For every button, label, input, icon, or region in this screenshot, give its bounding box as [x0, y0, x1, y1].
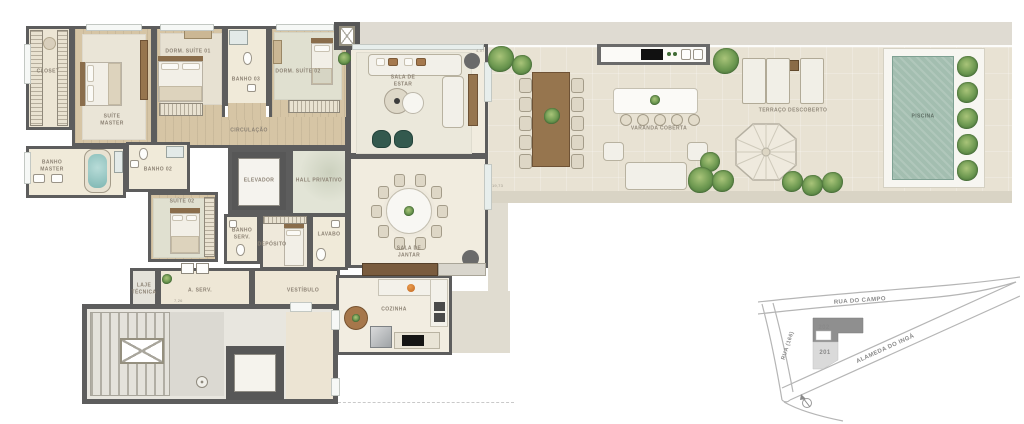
room-a-serv — [158, 268, 252, 308]
decor-dot — [667, 52, 671, 56]
dorm1-pillow — [161, 63, 179, 70]
deposito-pillow — [286, 230, 301, 236]
north-arrow-icon — [800, 394, 812, 408]
outdoor-cooktop-icon — [641, 49, 663, 60]
banho3-shower — [229, 30, 248, 45]
deposito-shelf — [263, 216, 307, 224]
service-lobby — [286, 312, 333, 399]
map-unit-202-label: 202 — [818, 325, 829, 331]
varanda-chair — [571, 97, 584, 112]
suite-master-tv-console — [140, 40, 148, 100]
varanda-chair — [519, 78, 532, 93]
dining-chair — [415, 174, 426, 187]
dorm2-pillow — [314, 45, 330, 52]
varanda-chair — [519, 154, 532, 169]
terrace-slab-band — [358, 22, 1012, 45]
floor-plan-canvas: CLOSET SUÍTE MASTER DORM. SUÍTE 01 BANHO… — [0, 0, 1024, 424]
outdoor-sink-icon — [681, 49, 691, 60]
window — [160, 24, 214, 31]
sun-lounger — [800, 58, 824, 104]
wall-oven-icon — [434, 313, 445, 322]
circulacao-branch — [228, 103, 266, 120]
dining-chair — [415, 237, 426, 250]
building-entry — [816, 331, 831, 340]
window — [86, 24, 142, 31]
banho-master-sink-icon — [51, 174, 63, 183]
dining-chair — [378, 186, 389, 199]
sofa-pillow — [376, 58, 385, 66]
stair-void-x — [120, 338, 164, 364]
island-stool — [654, 114, 666, 126]
service-elevator-cab — [234, 354, 276, 392]
console-wood — [468, 74, 478, 126]
banho-master-shower — [114, 151, 123, 173]
banho2-sink-icon — [130, 160, 139, 168]
banho2-toilet-icon — [139, 148, 148, 160]
suite-master-pillow — [87, 85, 94, 102]
varanda-chair — [519, 135, 532, 150]
varanda-chair — [519, 97, 532, 112]
wall-oven-icon — [434, 302, 445, 311]
window — [24, 44, 31, 84]
suite-master-pillow — [87, 65, 94, 82]
glass-door — [484, 164, 492, 210]
buffet-cabinet — [438, 263, 486, 276]
banho-serv-sink-icon — [229, 220, 237, 228]
dorm1-pillow — [182, 63, 200, 70]
fruit-bowl-icon — [407, 284, 415, 292]
room-banho-master — [26, 146, 126, 198]
dimension-label: 7,26 — [174, 298, 183, 303]
glass-wall — [352, 44, 484, 50]
dining-chair — [394, 174, 405, 187]
wardrobe-left — [30, 30, 43, 126]
dorm2-wardrobe — [288, 100, 340, 113]
armchair-green — [372, 130, 391, 148]
varanda-chair — [571, 116, 584, 131]
varanda-chair — [571, 78, 584, 93]
window — [24, 152, 31, 184]
sun-lounger — [766, 58, 790, 104]
dryer-icon — [196, 263, 209, 274]
map-street-left-label: RUA (166) — [781, 331, 796, 361]
dining-chair — [378, 225, 389, 238]
terrace-corner-strip — [452, 291, 510, 353]
lavabo-toilet-icon — [316, 248, 326, 261]
sofa-cushion — [416, 58, 426, 66]
window — [276, 24, 334, 31]
dorm1-wardrobe — [159, 103, 203, 116]
washer-icon — [181, 263, 194, 274]
elevador-cab — [238, 158, 280, 206]
varanda-armchair — [603, 142, 624, 161]
closet-pouf — [43, 37, 56, 50]
sofa-pillow — [404, 58, 413, 66]
banho3-toilet-icon — [243, 52, 252, 65]
dorm2-dresser — [273, 40, 282, 64]
terrace-side-strip — [488, 203, 508, 291]
lavabo-sink-icon — [331, 220, 340, 228]
armchair-green — [394, 130, 413, 148]
l-sofa-right — [442, 76, 464, 128]
dining-chair — [394, 237, 405, 250]
map-unit-201-label: 201 — [819, 350, 830, 356]
banho2-shower — [166, 146, 184, 158]
varanda-chair — [519, 116, 532, 131]
door-gap — [290, 302, 312, 312]
suite2-wardrobe — [204, 197, 215, 257]
buffet-wood — [362, 263, 438, 276]
island-stool — [620, 114, 632, 126]
banho-master-sink-icon — [33, 174, 45, 183]
outdoor-sink-icon — [693, 49, 703, 60]
terrace-edge-rim — [488, 191, 1012, 203]
dorm1-blanket — [159, 86, 202, 101]
side-table-round — [464, 53, 480, 69]
sun-lounger — [742, 58, 766, 104]
island-stool — [688, 114, 700, 126]
decor-dot — [394, 98, 400, 104]
fire-hose-icon — [196, 376, 208, 388]
dining-chair — [431, 225, 442, 238]
varanda-sofa — [625, 162, 687, 190]
room-laje-tecnica — [130, 268, 158, 308]
street-line — [762, 304, 782, 400]
suite2-blanket — [171, 236, 199, 253]
duct-shaft-x — [339, 26, 355, 46]
projection-dashed-line — [338, 402, 514, 403]
room-hall-privativo — [290, 148, 348, 216]
map-street-diagonal-label: ALAMEDA DO INGÁ — [855, 332, 916, 365]
wardrobe-right — [57, 30, 68, 126]
suite-master-blanket — [108, 63, 121, 105]
location-key-map: RUA DO CAMPO ALAMEDA DO INGÁ RUA (166) 2… — [758, 276, 1020, 422]
door-gap — [331, 310, 340, 330]
island-stool — [671, 114, 683, 126]
fridge-icon — [370, 326, 392, 348]
dining-chair — [437, 205, 448, 218]
suite2-pillow — [172, 215, 183, 221]
banho3-sink-icon — [247, 84, 256, 92]
street-line — [784, 402, 843, 421]
island-stool — [637, 114, 649, 126]
door-gap — [331, 378, 340, 396]
dimension-label: 4,07 — [476, 48, 485, 53]
dorm1-desk — [184, 30, 212, 39]
dining-chair — [431, 186, 442, 199]
varanda-chair — [571, 154, 584, 169]
varanda-chair — [571, 135, 584, 150]
cooktop-icon — [402, 335, 424, 346]
street-line — [782, 400, 790, 402]
banho-master-tub-water — [88, 154, 107, 188]
coffee-table-2 — [402, 92, 424, 114]
room-lavabo — [310, 214, 348, 270]
banho-serv-toilet-icon — [236, 244, 245, 256]
decor-dot — [673, 52, 677, 56]
suite2-pillow — [186, 215, 197, 221]
dorm2-blanket — [312, 68, 332, 84]
sofa-cushion — [388, 58, 398, 66]
dimension-label: 19,73 — [492, 183, 503, 188]
pool-water — [892, 56, 954, 180]
dining-chair — [371, 205, 382, 218]
